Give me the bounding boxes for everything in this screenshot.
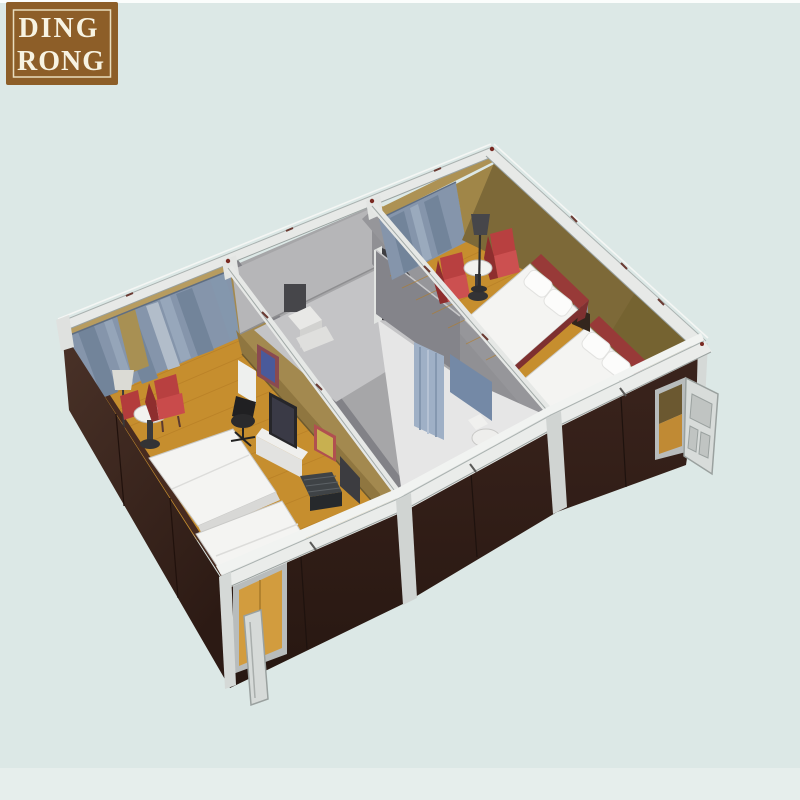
svg-text:DING: DING [18,13,99,44]
svg-text:RONG: RONG [17,46,105,77]
